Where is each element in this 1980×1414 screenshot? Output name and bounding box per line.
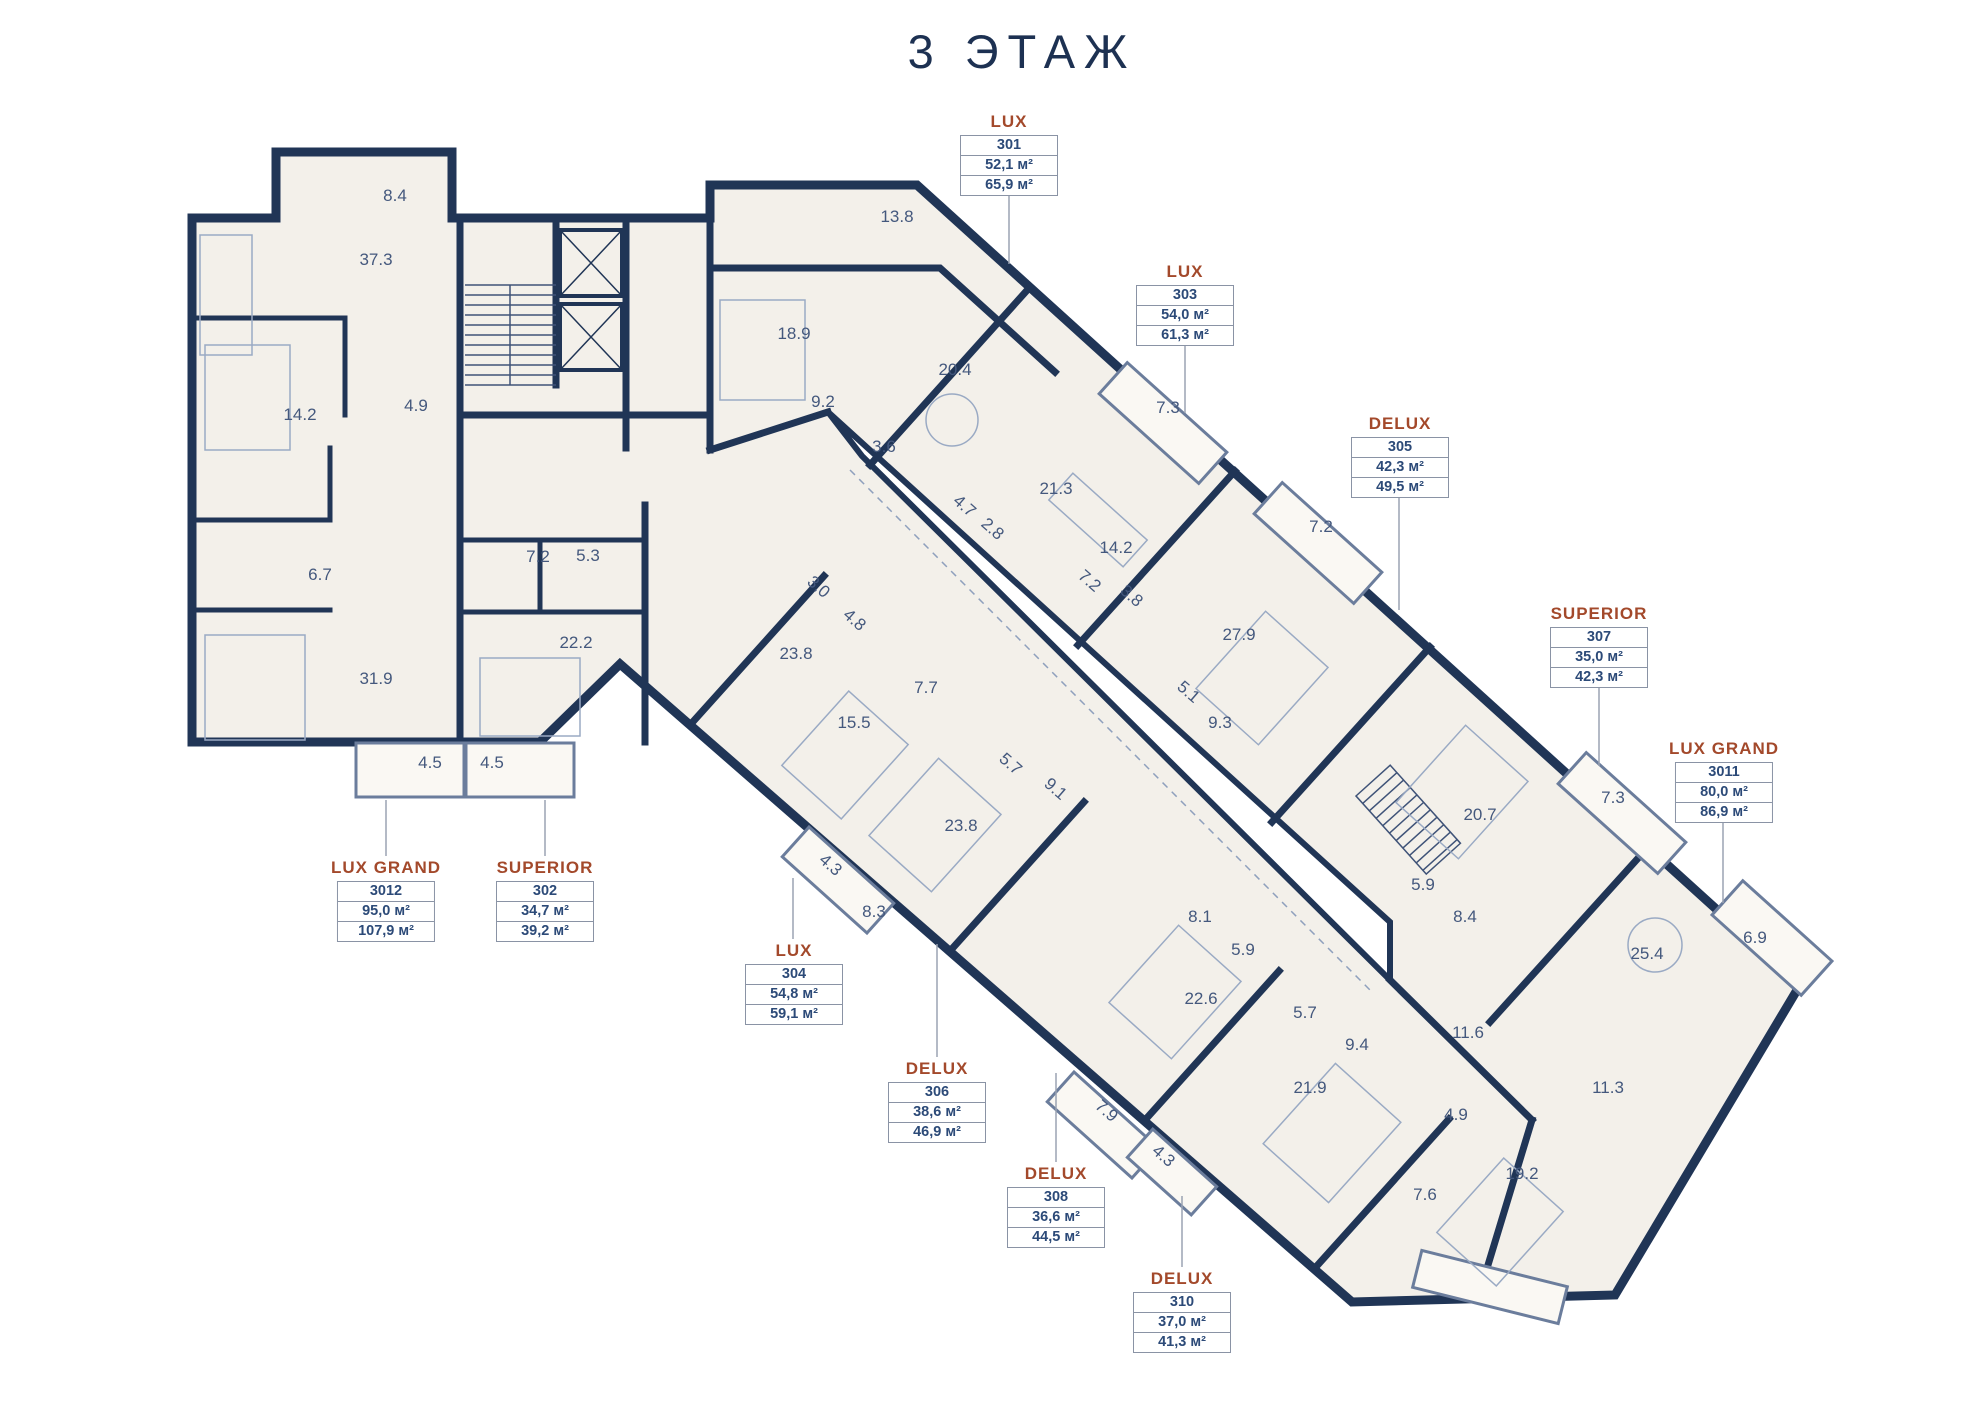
unit-area: 54,0 м²	[1137, 305, 1233, 325]
room-area-label: 25.4	[1630, 944, 1663, 963]
room-area-label: 7.6	[1413, 1185, 1437, 1204]
unit-area-total: 41,3 м²	[1134, 1332, 1230, 1352]
unit-area: 42,3 м²	[1352, 457, 1448, 477]
unit-info-box: 307 35,0 м² 42,3 м²	[1550, 627, 1648, 688]
unit-area: 95,0 м²	[338, 901, 434, 921]
floor-plan-canvas: 8.437.314.24.96.731.94.54.57.25.322.213.…	[0, 0, 1980, 1414]
room-area-label: 5.9	[1411, 875, 1435, 894]
room-area-label: 3.6	[872, 437, 896, 456]
room-area-label: 4.5	[418, 753, 442, 772]
room-area-label: 22.6	[1184, 989, 1217, 1008]
room-area-label: 37.3	[359, 250, 392, 269]
unit-number: 302	[497, 882, 593, 901]
unit-info-box: 302 34,7 м² 39,2 м²	[496, 881, 594, 942]
unit-info-box: 3012 95,0 м² 107,9 м²	[337, 881, 435, 942]
unit-number: 304	[746, 965, 842, 984]
unit-area: 37,0 м²	[1134, 1312, 1230, 1332]
room-area-label: 13.8	[880, 207, 913, 226]
unit-number: 308	[1008, 1188, 1104, 1207]
unit-info-box: 3011 80,0 м² 86,9 м²	[1675, 762, 1773, 823]
room-area-label: 31.9	[359, 669, 392, 688]
unit-label-310: DELUX 310 37,0 м² 41,3 м²	[1133, 1269, 1231, 1353]
room-area-label: 11.6	[1452, 1023, 1484, 1042]
unit-label-306: DELUX 306 38,6 м² 46,9 м²	[888, 1059, 986, 1143]
room-area-label: 15.5	[837, 713, 870, 732]
room-area-label: 7.2	[1309, 517, 1333, 536]
room-area-label: 5.9	[1231, 940, 1255, 959]
room-area-label: 4.9	[404, 396, 428, 415]
room-area-label: 9.4	[1345, 1035, 1369, 1054]
room-area-label: 7.3	[1156, 398, 1180, 417]
unit-area: 54,8 м²	[746, 984, 842, 1004]
room-area-label: 4.9	[1444, 1105, 1468, 1124]
unit-type: SUPERIOR	[496, 858, 594, 878]
room-area-label: 7.7	[914, 678, 938, 697]
unit-area-total: 65,9 м²	[961, 175, 1057, 195]
unit-number: 310	[1134, 1293, 1230, 1312]
unit-area-total: 61,3 м²	[1137, 325, 1233, 345]
room-area-label: 14.2	[1099, 538, 1132, 557]
unit-label-301: LUX 301 52,1 м² 65,9 м²	[960, 112, 1058, 196]
room-area-label: 6.9	[1743, 928, 1767, 947]
room-area-label: 7.3	[1601, 788, 1625, 807]
unit-number: 305	[1352, 438, 1448, 457]
room-area-label: 7.2	[526, 547, 550, 566]
unit-area-total: 107,9 м²	[338, 921, 434, 941]
unit-number: 303	[1137, 286, 1233, 305]
unit-info-box: 310 37,0 м² 41,3 м²	[1133, 1292, 1231, 1353]
room-area-label: 27.9	[1222, 625, 1255, 644]
unit-label-3011: LUX GRAND 3011 80,0 м² 86,9 м²	[1669, 739, 1779, 823]
unit-label-302: SUPERIOR 302 34,7 м² 39,2 м²	[496, 858, 594, 942]
unit-type: LUX	[960, 112, 1058, 132]
room-area-label: 8.1	[1188, 907, 1212, 926]
room-area-label: 20.4	[938, 360, 971, 379]
unit-info-box: 301 52,1 м² 65,9 м²	[960, 135, 1058, 196]
unit-area: 52,1 м²	[961, 155, 1057, 175]
room-area-label: 8.4	[383, 186, 407, 205]
room-area-label: 23.8	[779, 644, 812, 663]
room-area-label: 9.3	[1208, 713, 1232, 732]
unit-number: 306	[889, 1083, 985, 1102]
unit-area-total: 42,3 м²	[1551, 667, 1647, 687]
unit-area-total: 44,5 м²	[1008, 1227, 1104, 1247]
unit-area-total: 59,1 м²	[746, 1004, 842, 1024]
unit-label-308: DELUX 308 36,6 м² 44,5 м²	[1007, 1164, 1105, 1248]
unit-area: 35,0 м²	[1551, 647, 1647, 667]
unit-info-box: 305 42,3 м² 49,5 м²	[1351, 437, 1449, 498]
room-area-label: 6.7	[308, 565, 332, 584]
unit-number: 3012	[338, 882, 434, 901]
unit-area: 36,6 м²	[1008, 1207, 1104, 1227]
unit-info-box: 308 36,6 м² 44,5 м²	[1007, 1187, 1105, 1248]
unit-type: DELUX	[1351, 414, 1449, 434]
room-area-label: 22.2	[559, 633, 592, 652]
unit-label-305: DELUX 305 42,3 м² 49,5 м²	[1351, 414, 1449, 498]
room-area-label: 5.7	[1293, 1003, 1317, 1022]
unit-number: 301	[961, 136, 1057, 155]
room-area-label: 21.9	[1293, 1078, 1326, 1097]
room-area-label: 8.3	[862, 902, 886, 921]
room-area-label: 20.7	[1463, 805, 1496, 824]
unit-type: LUX	[745, 941, 843, 961]
unit-info-box: 304 54,8 м² 59,1 м²	[745, 964, 843, 1025]
balcony	[356, 743, 464, 797]
unit-area-total: 86,9 м²	[1676, 802, 1772, 822]
page-title: 3 ЭТАЖ	[908, 24, 1137, 79]
room-area-label: 21.3	[1039, 479, 1072, 498]
room-area-label: 8.4	[1453, 907, 1477, 926]
unit-area-total: 46,9 м²	[889, 1122, 985, 1142]
unit-area: 34,7 м²	[497, 901, 593, 921]
room-area-label: 19.2	[1505, 1164, 1538, 1183]
room-area-label: 18.9	[777, 324, 810, 343]
unit-type: DELUX	[1133, 1269, 1231, 1289]
unit-label-3012: LUX GRAND 3012 95,0 м² 107,9 м²	[331, 858, 441, 942]
unit-type: LUX GRAND	[331, 858, 441, 878]
unit-number: 3011	[1676, 763, 1772, 782]
unit-info-box: 306 38,6 м² 46,9 м²	[888, 1082, 986, 1143]
unit-type: SUPERIOR	[1550, 604, 1648, 624]
unit-info-box: 303 54,0 м² 61,3 м²	[1136, 285, 1234, 346]
unit-type: DELUX	[1007, 1164, 1105, 1184]
unit-label-307: SUPERIOR 307 35,0 м² 42,3 м²	[1550, 604, 1648, 688]
unit-area: 38,6 м²	[889, 1102, 985, 1122]
unit-area-total: 39,2 м²	[497, 921, 593, 941]
floor-plan-page: { "title": "3 ЭТАЖ", "colors": { "walls_…	[0, 0, 1980, 1414]
room-area-label: 14.2	[283, 405, 316, 424]
unit-number: 307	[1551, 628, 1647, 647]
room-area-label: 23.8	[944, 816, 977, 835]
room-area-label: 5.3	[576, 546, 600, 565]
unit-type: DELUX	[888, 1059, 986, 1079]
unit-label-304: LUX 304 54,8 м² 59,1 м²	[745, 941, 843, 1025]
unit-type: LUX	[1136, 262, 1234, 282]
room-area-label: 4.5	[480, 753, 504, 772]
unit-area-total: 49,5 м²	[1352, 477, 1448, 497]
room-area-label: 11.3	[1592, 1078, 1624, 1097]
unit-area: 80,0 м²	[1676, 782, 1772, 802]
unit-label-303: LUX 303 54,0 м² 61,3 м²	[1136, 262, 1234, 346]
room-area-label: 9.2	[811, 392, 835, 411]
unit-type: LUX GRAND	[1669, 739, 1779, 759]
